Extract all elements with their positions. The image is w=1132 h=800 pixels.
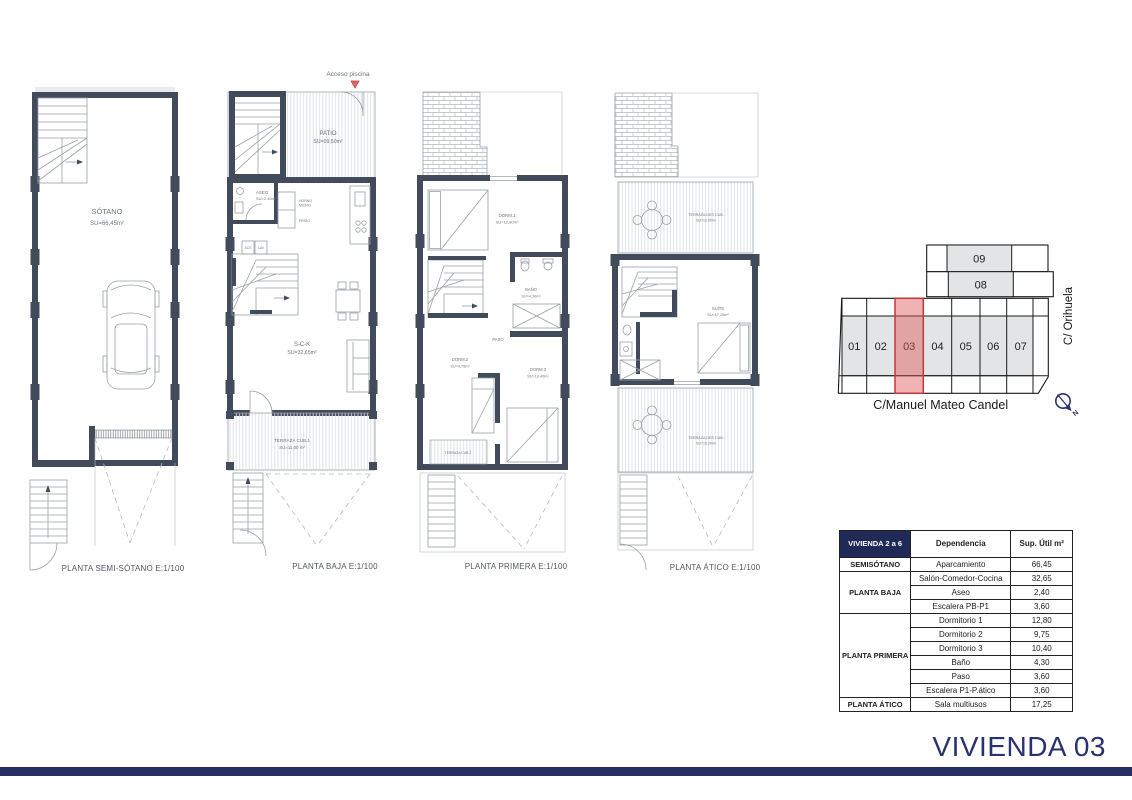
room-label-patio: PATIO [319, 131, 336, 137]
room-cell: Sala multiusos [911, 698, 1011, 712]
unit-label-02: 02 [875, 341, 887, 353]
room-cell: Escalera PB-P1 [911, 600, 1011, 614]
plan-semisotano-drawing: SÓTANO SU=66,45m² PLANTA SEMI-SÓTANO E:1… [28, 84, 198, 576]
footer-bar [0, 767, 1132, 776]
room-area-suite: SU=17,25m² [707, 313, 729, 317]
row-block: 01 02 03 04 05 06 07 [838, 298, 1048, 393]
label-lav: LAV [258, 246, 265, 250]
sheet-title: VIVIENDA 03 [932, 731, 1106, 763]
unit-label-05: 05 [960, 341, 972, 353]
area-cell: 3,60 [1011, 600, 1073, 614]
room-area-terraza-bottom: SU=15,20m² [696, 442, 717, 446]
unit-label-08: 08 [975, 279, 987, 291]
pool-access-marker-icon [351, 81, 359, 88]
unit-label-06: 06 [987, 341, 999, 353]
room-area-aseo: SU=2,40m² [256, 196, 277, 201]
unit-label-04: 04 [931, 341, 943, 353]
roof-hatch [423, 92, 487, 178]
label-frigo: FRIGO [299, 219, 310, 223]
floor-cell: PLANTA BAJA [840, 572, 911, 614]
open-roof-outline [672, 93, 758, 177]
exterior-stairs [30, 480, 67, 570]
table-header-dependencia: Dependencia [911, 531, 1011, 558]
street-label-right: C/ Orihuela [1063, 286, 1075, 345]
exterior-stairs [233, 473, 266, 556]
room-label-bano: BAÑO [525, 287, 538, 292]
site-plan: 09 08 01 02 03 04 05 06 07 C/Manuel Mate… [826, 236, 1132, 438]
area-cell: 2,40 [1011, 586, 1073, 600]
unit-label-01: 01 [848, 341, 860, 353]
room-area-terraza1: SU=11,00 m² [279, 445, 305, 450]
area-cell: 10,40 [1011, 642, 1073, 656]
upper-block: 09 08 [927, 245, 1054, 297]
table-row: SEMISÓTANO Aparcamiento 66,45 [840, 558, 1073, 572]
floor-cell: SEMISÓTANO [840, 558, 911, 572]
street-label-bottom: C/Manuel Mateo Candel [873, 398, 1008, 412]
room-area-patio: SU=09,50m² [313, 139, 343, 145]
highlighted-unit-03 [895, 298, 923, 393]
room-area-sck: SU=32,65m² [287, 350, 317, 356]
room-cell: Dormitorio 1 [911, 614, 1011, 628]
lower-terrace [420, 473, 565, 552]
garage-grille [95, 430, 172, 438]
plan-title-baja: PLANTA BAJA E:1/100 [292, 562, 378, 571]
area-cell: 3,60 [1011, 684, 1073, 698]
room-cell: Aseo [911, 586, 1011, 600]
room-label-terraza-top: TERRAZA DES CUB. [688, 213, 723, 217]
door-arc [30, 543, 57, 570]
room-area-sotano: SU=66,45m² [90, 221, 124, 227]
room-label-sotano: SÓTANO [91, 207, 122, 216]
room-label-terraza2: TERRAZA CUB.2 [445, 451, 472, 455]
room-area-dorm1: SU=12,80m² [496, 220, 519, 225]
room-area-dorm2: SU=9,75m² [450, 365, 470, 369]
floor-cell: PLANTA ÁTICO [840, 698, 911, 712]
plan-atico-drawing: TERRAZA DES CUB. SU=12,00m² SUITE SU=17,… [608, 84, 780, 576]
table-header-sup: Sup. Útil m² [1011, 531, 1073, 558]
plan-title-primera: PLANTA PRIMERA E:1/100 [465, 562, 568, 571]
terraza-top-hatch [618, 182, 753, 253]
aseo-wall [274, 182, 278, 224]
plan-primera-drawing: DORM.1 SU=12,80m² BAÑO SU=4,30m² PASO DO [414, 84, 582, 576]
room-label-terraza-bottom: TERRAZA DES CUB. [688, 436, 723, 440]
unit-label-07: 07 [1015, 341, 1027, 353]
plan-title-atico: PLANTA ÁTICO E:1/100 [670, 563, 761, 572]
table-row: PLANTA ÁTICO Sala multiusos 17,25 [840, 698, 1073, 712]
party-wall [35, 87, 175, 92]
room-area-dorm3: SU=10,40m² [527, 375, 549, 379]
area-cell: 9,75 [1011, 628, 1073, 642]
area-cell: 3,60 [1011, 670, 1073, 684]
table-row: PLANTA PRIMERA Dormitorio 1 12,80 [840, 614, 1073, 628]
floor-cell: PLANTA PRIMERA [840, 614, 911, 698]
aseo-wall2 [230, 220, 278, 224]
area-cell: 12,80 [1011, 614, 1073, 628]
room-area-terraza-top: SU=12,00m² [696, 219, 717, 223]
roof-hatch [615, 93, 678, 177]
plan-baja-drawing: Acceso piscina PATIO SU=09,50m² ASEO SU=… [222, 62, 384, 576]
area-cell: 32,65 [1011, 572, 1073, 586]
room-cell: Baño [911, 656, 1011, 670]
area-cell: 4,30 [1011, 656, 1073, 670]
room-label-aseo: ASEO [256, 190, 269, 195]
room-cell: Aparcamiento [911, 558, 1011, 572]
terraza-bottom-hatch [618, 388, 753, 472]
plan-title-semisotano: PLANTA SEMI-SÓTANO E:1/100 [62, 564, 185, 573]
north-arrow-icon: N [1056, 394, 1080, 418]
door-arc [620, 544, 646, 570]
terrace-door [674, 377, 700, 387]
acceso-piscina-label: Acceso piscina [326, 71, 370, 78]
room-label-sck: S-C-K [294, 342, 310, 348]
north-label: N [1072, 409, 1080, 418]
area-cell: 66,45 [1011, 558, 1073, 572]
unit-label-09: 09 [973, 254, 985, 266]
open-roof-outline [480, 92, 562, 178]
room-cell: Dormitorio 2 [911, 628, 1011, 642]
room-label-dorm2: DORM.2 [452, 357, 469, 362]
label-micro: MICRO [299, 204, 311, 208]
areas-table: VIVIENDA 2 a 6 Dependencia Sup. Útil m² … [839, 530, 1073, 712]
room-cell: Salón-Comedor-Cocina [911, 572, 1011, 586]
table-header-vivienda: VIVIENDA 2 a 6 [840, 531, 911, 558]
table-row: PLANTA BAJA Salón-Comedor-Cocina 32,65 [840, 572, 1073, 586]
room-area-bano: SU=4,30m² [521, 295, 541, 299]
room-label-dorm1: DORM.1 [498, 213, 516, 218]
wall-step [89, 426, 95, 467]
driveway-ramp [266, 474, 370, 546]
stairwell-walls [232, 94, 283, 177]
room-label-paso: PASO [492, 337, 504, 342]
lower-terrace [618, 473, 753, 570]
area-cell: 17,25 [1011, 698, 1073, 712]
lower-wall [32, 460, 95, 467]
window [490, 174, 517, 183]
room-cell: Paso [911, 670, 1011, 684]
plan-sheet: SÓTANO SU=66,45m² PLANTA SEMI-SÓTANO E:1… [0, 0, 1132, 800]
outer-walls [230, 180, 373, 413]
room-cell: Escalera P1-P.ático [911, 684, 1011, 698]
room-label-suite: SUITE [712, 306, 725, 311]
room-label-dorm3: DORM.3 [530, 367, 547, 372]
label-acs: ACS [245, 246, 253, 250]
label-horno: HORNO [299, 199, 312, 203]
room-label-terraza1: TERRAZA CUB.1 [274, 438, 310, 443]
room-cell: Dormitorio 3 [911, 642, 1011, 656]
